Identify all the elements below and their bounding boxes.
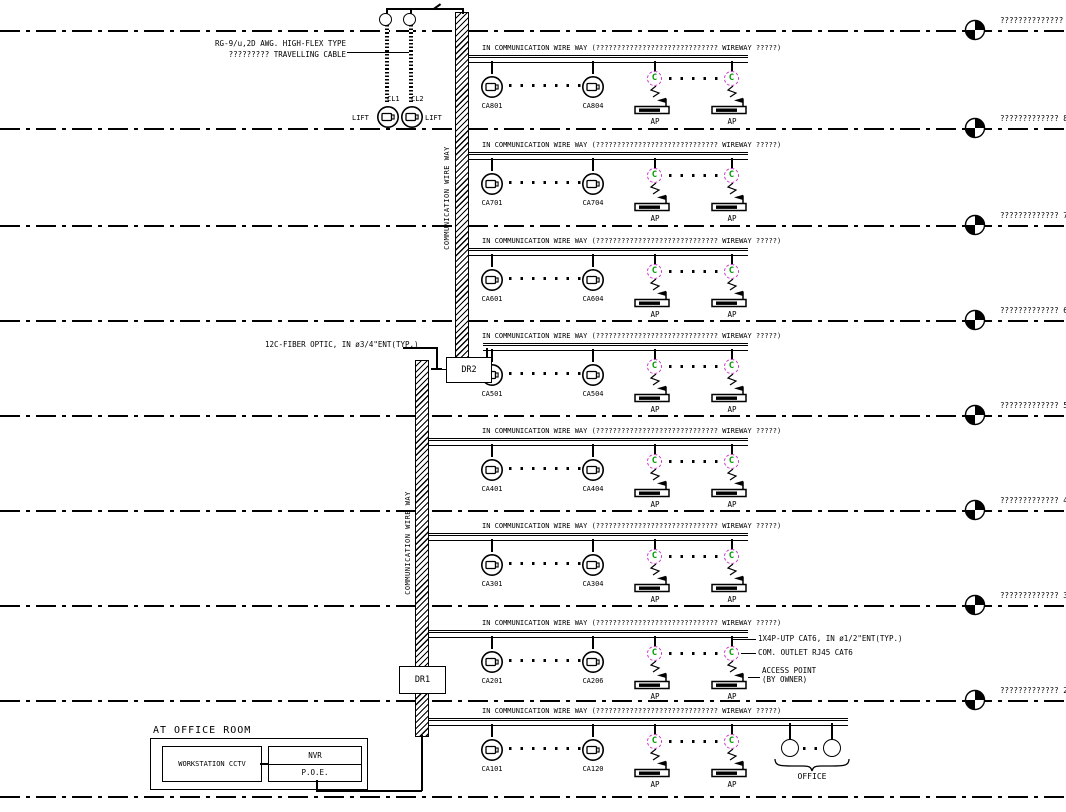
wireway-caption: IN COMMUNICATION WIRE WAY (?????????????… (482, 237, 781, 246)
floor-line (0, 30, 1066, 32)
floor-line (0, 415, 1066, 417)
continuation-dots (509, 747, 581, 750)
access-point-icon (710, 760, 754, 778)
com-outlet-icon: C (724, 264, 739, 279)
continuation-dots (669, 460, 719, 463)
ap-label: AP (631, 117, 679, 126)
upper-communication-riser (455, 12, 469, 359)
outlet-label: CA604 (569, 295, 617, 303)
com-outlet-icon: C (647, 359, 662, 374)
level-label: ????????????? 3 (1000, 591, 1066, 600)
wireway-caption: IN COMMUNICATION WIRE WAY (?????????????… (482, 141, 781, 150)
ap-label: AP (708, 214, 756, 223)
access-point-icon (633, 97, 677, 115)
wireway-caption: IN COMMUNICATION WIRE WAY (?????????????… (482, 427, 781, 436)
outlet-label: CA206 (569, 677, 617, 685)
floor-line (0, 225, 1066, 227)
drop-line (731, 158, 733, 168)
wireway-bar (468, 152, 748, 160)
nvr-label: NVR (308, 751, 322, 760)
ap-label: AP (631, 595, 679, 604)
office-room-title: AT OFFICE ROOM (153, 726, 251, 735)
wireway-bar (468, 55, 748, 63)
camera-outlet-icon (479, 74, 505, 100)
cable-run-line (386, 8, 463, 10)
poe-output-line (421, 735, 423, 791)
drop-line (592, 636, 594, 649)
outlet-label: CA101 (468, 765, 516, 773)
drop-line (592, 724, 594, 737)
dr2-label: DR2 (461, 366, 476, 375)
ap-label: AP (708, 117, 756, 126)
camera-outlet-icon (580, 171, 606, 197)
leader-line (403, 347, 437, 349)
floor-line (0, 510, 1066, 512)
continuation-dots (669, 365, 719, 368)
cl1-label: CL1 (387, 95, 400, 104)
ap-label: AP (708, 595, 756, 604)
drop-line (731, 444, 733, 454)
camera-outlet-icon (580, 362, 606, 388)
office-brace-icon (772, 757, 852, 773)
ap-label: AP (631, 780, 679, 789)
access-point-icon (710, 672, 754, 690)
continuation-dots (509, 659, 581, 662)
utp-note: 1X4P-UTP CAT6, IN ø1/2"ENT(TYP.) (758, 634, 903, 643)
camera-outlet-icon (479, 171, 505, 197)
drop-line (491, 636, 493, 649)
drop-line (491, 444, 493, 457)
com-outlet-icon: C (647, 168, 662, 183)
drop-line (592, 444, 594, 457)
com-outlet-icon: C (647, 454, 662, 469)
camera-outlet-icon (580, 737, 606, 763)
leader-line (741, 653, 756, 654)
com-outlet-icon: C (724, 454, 739, 469)
wireway-bar (428, 438, 748, 446)
access-point-icon (710, 575, 754, 593)
office-outlet-icon (781, 739, 799, 757)
leader-line (748, 677, 760, 678)
access-point-note: (BY OWNER) (762, 675, 807, 684)
camera-outlet-icon (479, 649, 505, 675)
lower-riser-label: COMMUNICATION WIRE WAY (404, 468, 412, 618)
com-outlet-icon: C (647, 646, 662, 661)
dr1-label: DR1 (415, 676, 430, 685)
leader-line (436, 347, 438, 369)
outlet-label: CA701 (468, 199, 516, 207)
camera-outlet-icon (479, 552, 505, 578)
ap-label: AP (631, 500, 679, 509)
ap-label: AP (708, 405, 756, 414)
cl2-label: CL2 (411, 95, 424, 104)
upper-riser-label: COMMUNICATION WIRE WAY (443, 123, 451, 273)
connector-line (260, 763, 268, 765)
drop-line (654, 636, 656, 646)
continuation-dots (669, 555, 719, 558)
nvr-poe-box: NVR P.O.E. (268, 746, 362, 782)
drop-line (731, 61, 733, 71)
drop-line (789, 723, 791, 739)
continuation-dots (669, 77, 719, 80)
drop-line (654, 349, 656, 359)
com-outlet-icon: C (724, 71, 739, 86)
dr2-box: DR2 (446, 357, 492, 383)
lift-camera-icon (399, 104, 425, 130)
riser-diagram: IN COMMUNICATION WIRE WAY (?????????????… (0, 0, 1066, 812)
camera-outlet-icon (580, 649, 606, 675)
lift-label-left: LIFT (352, 114, 369, 123)
outlet-label: CA304 (569, 580, 617, 588)
wireway-bar (428, 630, 748, 638)
continuation-dots (669, 270, 719, 273)
floor-line (0, 700, 1066, 702)
ap-label: AP (631, 405, 679, 414)
wireway-caption: IN COMMUNICATION WIRE WAY (?????????????… (482, 522, 781, 531)
drop-line (654, 444, 656, 454)
outlet-label: CA601 (468, 295, 516, 303)
access-point-icon (710, 480, 754, 498)
com-outlet-note: COM. OUTLET RJ45 CAT6 (758, 648, 853, 657)
wireway-caption: IN COMMUNICATION WIRE WAY (?????????????… (482, 44, 781, 53)
drop-line (491, 254, 493, 267)
drop-line (491, 539, 493, 552)
continuation-dots (509, 467, 581, 470)
wireway-caption: IN COMMUNICATION WIRE WAY (?????????????… (482, 619, 781, 628)
outlet-label: CA801 (468, 102, 516, 110)
poe-output-line (316, 790, 422, 792)
continuation-dots (509, 372, 581, 375)
outlet-label: CA404 (569, 485, 617, 493)
workstation-cctv-box: WORKSTATION CCTV (162, 746, 262, 782)
camera-outlet-icon (479, 457, 505, 483)
com-outlet-icon: C (724, 734, 739, 749)
level-label: ????????????? 5 (1000, 401, 1066, 410)
camera-outlet-icon (580, 552, 606, 578)
continuation-dots (509, 84, 581, 87)
com-outlet-icon: C (647, 264, 662, 279)
access-point-icon (633, 672, 677, 690)
drop-line (831, 723, 833, 739)
cable-run-line (462, 8, 464, 14)
com-outlet-icon: C (647, 549, 662, 564)
drop-line (654, 158, 656, 168)
continuation-dots (669, 652, 719, 655)
ap-label: AP (631, 214, 679, 223)
cable-note: ????????? TRAVELLING CABLE (198, 50, 346, 59)
camera-outlet-icon (479, 267, 505, 293)
drop-line (491, 724, 493, 737)
drop-line (592, 158, 594, 171)
ap-label: AP (708, 310, 756, 319)
outlet-label: CA504 (569, 390, 617, 398)
ap-label: AP (708, 692, 756, 701)
travelling-cable (385, 25, 389, 104)
level-label: ????????????? 2 (1000, 686, 1066, 695)
access-point-icon (710, 97, 754, 115)
office-outlet-icon (823, 739, 841, 757)
continuation-dots (509, 562, 581, 565)
level-label: ????????????? 8 (1000, 114, 1066, 123)
level-label: ????????????? 6 (1000, 306, 1066, 315)
camera-outlet-icon (580, 74, 606, 100)
access-point-icon (633, 575, 677, 593)
floor-line (0, 796, 1066, 798)
workstation-cctv-label: WORKSTATION CCTV (178, 760, 245, 768)
nvr-cell: NVR (269, 747, 361, 765)
drop-line (731, 539, 733, 549)
wireway-caption: IN COMMUNICATION WIRE WAY (?????????????… (482, 707, 781, 716)
drop-line (654, 724, 656, 734)
floor-line (0, 320, 1066, 322)
continuation-dots (669, 174, 719, 177)
leader-line (732, 639, 756, 640)
outlet-label: CA120 (569, 765, 617, 773)
level-datum-icon (964, 19, 986, 41)
drop-line (731, 724, 733, 734)
access-point-icon (710, 290, 754, 308)
drop-line (592, 539, 594, 552)
ap-label: AP (708, 500, 756, 509)
wireway-caption: IN COMMUNICATION WIRE WAY (?????????????… (482, 332, 781, 341)
access-point-icon (633, 480, 677, 498)
level-label: ????????????? 4 (1000, 496, 1066, 505)
outlet-label: CA401 (468, 485, 516, 493)
access-point-icon (710, 194, 754, 212)
drop-line (491, 61, 493, 74)
drop-line (592, 61, 594, 74)
camera-outlet-icon (580, 457, 606, 483)
floor-line (0, 605, 1066, 607)
leader-line (437, 369, 446, 371)
level-label: ?????????????? (1000, 16, 1063, 25)
level-datum-icon (964, 499, 986, 521)
wireway-bar (428, 533, 748, 541)
level-datum-icon (964, 214, 986, 236)
drop-line (731, 254, 733, 264)
lift-camera-icon (375, 104, 401, 130)
com-outlet-icon: C (724, 646, 739, 661)
access-point-icon (710, 385, 754, 403)
access-point-icon (633, 290, 677, 308)
travelling-cable (409, 25, 413, 104)
level-datum-icon (964, 309, 986, 331)
cable-note: RG-9/u,2D AWG. HIGH-FLEX TYPE (198, 39, 346, 48)
drop-line (731, 636, 733, 646)
outlet-label: CA301 (468, 580, 516, 588)
poe-output-line (316, 780, 318, 790)
dr2-to-floor5-line (486, 348, 488, 357)
poe-cell: P.O.E. (269, 765, 361, 782)
outlet-label: CA201 (468, 677, 516, 685)
ap-label: AP (631, 692, 679, 701)
continuation-dots (669, 740, 719, 743)
drop-line (491, 158, 493, 171)
poe-label: P.O.E. (301, 768, 328, 777)
outlet-label: CA704 (569, 199, 617, 207)
drop-line (592, 254, 594, 267)
continuation-dots (803, 747, 821, 750)
drop-line (731, 349, 733, 359)
access-point-note: ACCESS POINT (762, 666, 816, 675)
continuation-dots (509, 181, 581, 184)
office-zone-label: OFFICE (782, 772, 842, 781)
leader-line (347, 52, 409, 53)
drop-line (592, 349, 594, 362)
drop-line (654, 254, 656, 264)
com-outlet-icon: C (647, 734, 662, 749)
com-outlet-icon: C (724, 359, 739, 374)
level-datum-icon (964, 689, 986, 711)
lift-label-right: LIFT (425, 114, 442, 123)
fiber-note: 12C-FIBER OPTIC, IN ø3/4"ENT(TYP.) (265, 340, 419, 349)
camera-outlet-icon (580, 267, 606, 293)
wireway-bar (483, 343, 748, 351)
access-point-icon (633, 760, 677, 778)
level-label: ????????????? 7 (1000, 211, 1066, 220)
outlet-label: CA501 (468, 390, 516, 398)
level-datum-icon (964, 117, 986, 139)
com-outlet-icon: C (724, 549, 739, 564)
ap-label: AP (708, 780, 756, 789)
continuation-dots (509, 277, 581, 280)
camera-outlet-icon (479, 737, 505, 763)
drop-line (654, 61, 656, 71)
floor-line (0, 128, 1066, 130)
access-point-icon (633, 194, 677, 212)
level-datum-icon (964, 594, 986, 616)
drop-line (654, 539, 656, 549)
level-datum-icon (964, 404, 986, 426)
wireway-bar (468, 248, 748, 256)
ap-label: AP (631, 310, 679, 319)
com-outlet-icon: C (724, 168, 739, 183)
access-point-icon (633, 385, 677, 403)
outlet-label: CA804 (569, 102, 617, 110)
com-outlet-icon: C (647, 71, 662, 86)
dr1-box: DR1 (399, 666, 446, 694)
